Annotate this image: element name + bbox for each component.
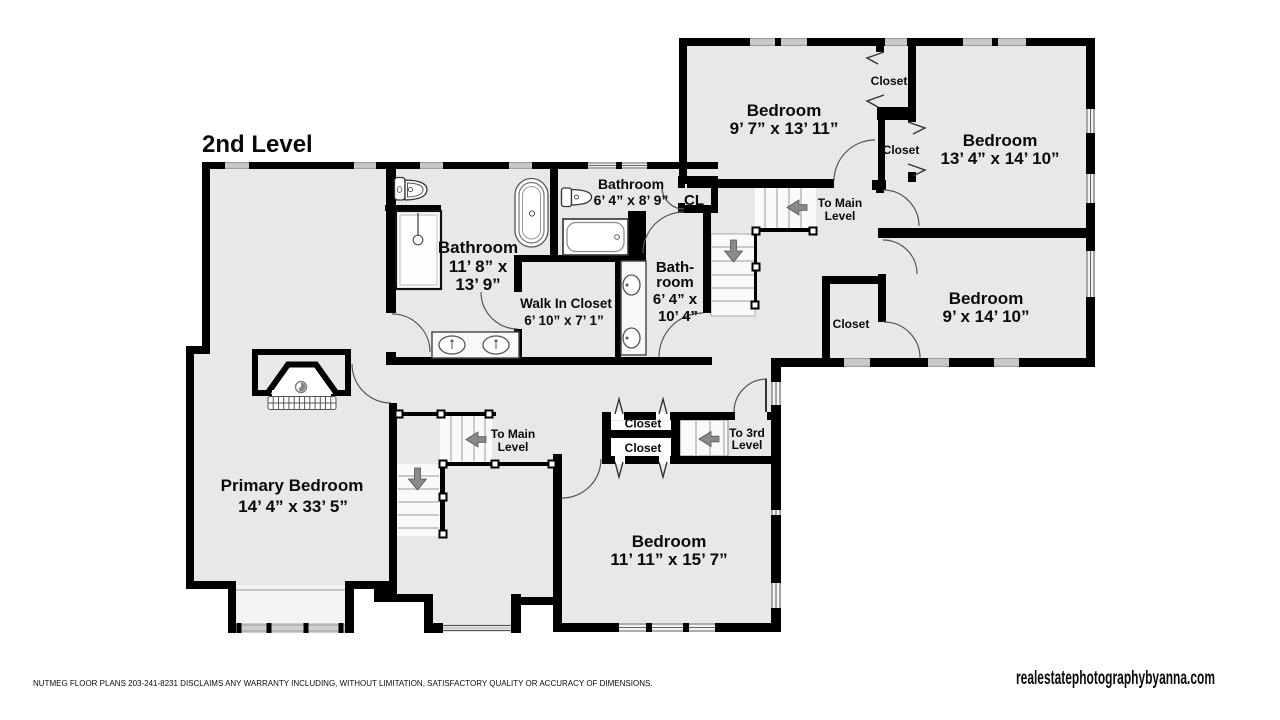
- svg-text:Closet: Closet: [625, 417, 662, 431]
- svg-text:To Main: To Main: [818, 196, 862, 210]
- svg-text:Bathroom: Bathroom: [598, 176, 664, 192]
- svg-text:6’ 10” x 7’ 1”: 6’ 10” x 7’ 1”: [524, 313, 604, 328]
- svg-text:6’ 4” x: 6’ 4” x: [653, 291, 698, 308]
- svg-text:To Main: To Main: [491, 427, 535, 441]
- svg-text:NUTMEG FLOOR PLANS 203-241-823: NUTMEG FLOOR PLANS 203-241-8231 DISCLAIM…: [33, 679, 653, 688]
- svg-text:Bedroom: Bedroom: [632, 532, 707, 551]
- svg-text:Level: Level: [732, 438, 763, 452]
- svg-text:Bedroom: Bedroom: [747, 101, 822, 120]
- svg-text:Closet: Closet: [833, 317, 870, 331]
- svg-text:Primary Bedroom: Primary Bedroom: [221, 476, 364, 495]
- svg-text:CL: CL: [684, 192, 704, 209]
- svg-text:Closet: Closet: [871, 74, 908, 88]
- svg-text:9’ 7” x 13’ 11”: 9’ 7” x 13’ 11”: [730, 119, 839, 138]
- svg-text:2nd Level: 2nd Level: [202, 131, 313, 158]
- svg-text:realestatephotographybyanna.co: realestatephotographybyanna.com: [1016, 668, 1215, 689]
- svg-text:13’ 4” x 14’ 10”: 13’ 4” x 14’ 10”: [940, 149, 1059, 168]
- svg-text:Level: Level: [498, 440, 529, 454]
- svg-text:10’ 4”: 10’ 4”: [658, 308, 698, 325]
- svg-text:11’ 11” x 15’ 7”: 11’ 11” x 15’ 7”: [610, 550, 727, 569]
- svg-text:14’ 4” x 33’ 5”: 14’ 4” x 33’ 5”: [238, 497, 348, 516]
- svg-text:Walk In Closet: Walk In Closet: [520, 296, 612, 311]
- svg-text:11’ 8” x: 11’ 8” x: [449, 257, 508, 276]
- svg-text:6’ 4” x 8’ 9”: 6’ 4” x 8’ 9”: [594, 192, 669, 208]
- svg-text:Closet: Closet: [883, 143, 920, 157]
- svg-text:room: room: [656, 274, 694, 291]
- svg-text:Bathroom: Bathroom: [438, 238, 518, 257]
- svg-text:13’ 9”: 13’ 9”: [455, 275, 500, 294]
- svg-text:Level: Level: [825, 209, 856, 223]
- svg-text:Closet: Closet: [625, 441, 662, 455]
- svg-text:9’ x 14’ 10”: 9’ x 14’ 10”: [943, 307, 1030, 326]
- svg-text:Bedroom: Bedroom: [963, 131, 1038, 150]
- svg-text:Bedroom: Bedroom: [949, 289, 1024, 308]
